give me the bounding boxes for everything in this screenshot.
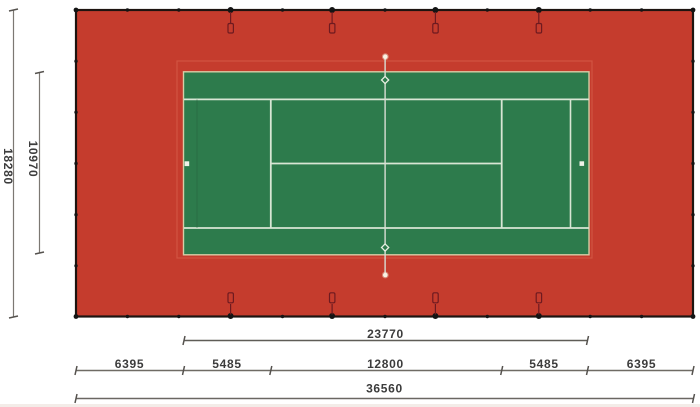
svg-text:36560: 36560 <box>366 382 403 396</box>
svg-text:23770: 23770 <box>367 327 404 341</box>
svg-text:5485: 5485 <box>212 357 242 371</box>
svg-text:6395: 6395 <box>627 357 657 371</box>
svg-text:5485: 5485 <box>529 357 559 371</box>
svg-text:6395: 6395 <box>115 357 145 371</box>
svg-text:10970: 10970 <box>26 141 40 178</box>
svg-text:12800: 12800 <box>367 357 404 371</box>
svg-text:18280: 18280 <box>1 148 15 185</box>
